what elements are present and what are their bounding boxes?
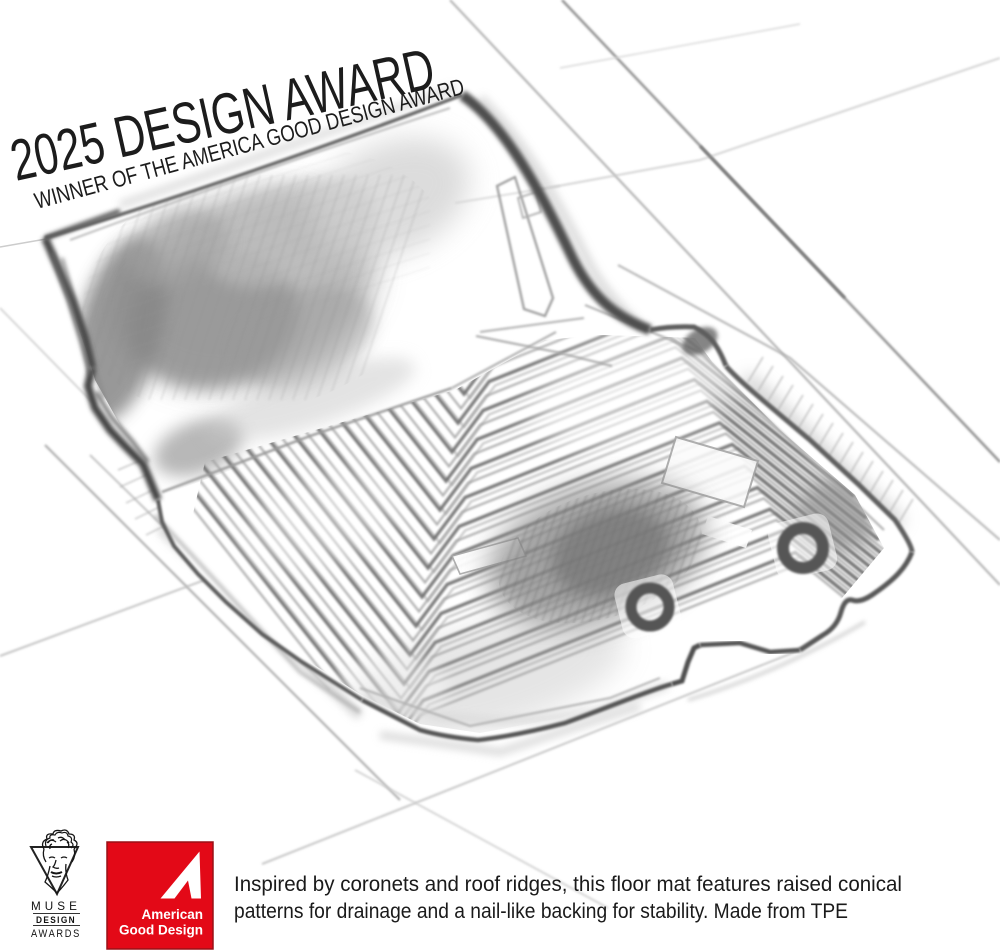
svg-text:American: American: [141, 907, 203, 922]
svg-text:patterns for drainage and a na: patterns for drainage and a nail-like ba…: [234, 899, 848, 923]
svg-text:DESIGN: DESIGN: [36, 915, 76, 925]
svg-text:AWARDS: AWARDS: [31, 928, 81, 940]
svg-text:Good Design: Good Design: [119, 923, 203, 938]
svg-text:Inspired by coronets and roof: Inspired by coronets and roof ridges, th…: [234, 872, 902, 896]
svg-text:MUSE: MUSE: [31, 901, 81, 913]
